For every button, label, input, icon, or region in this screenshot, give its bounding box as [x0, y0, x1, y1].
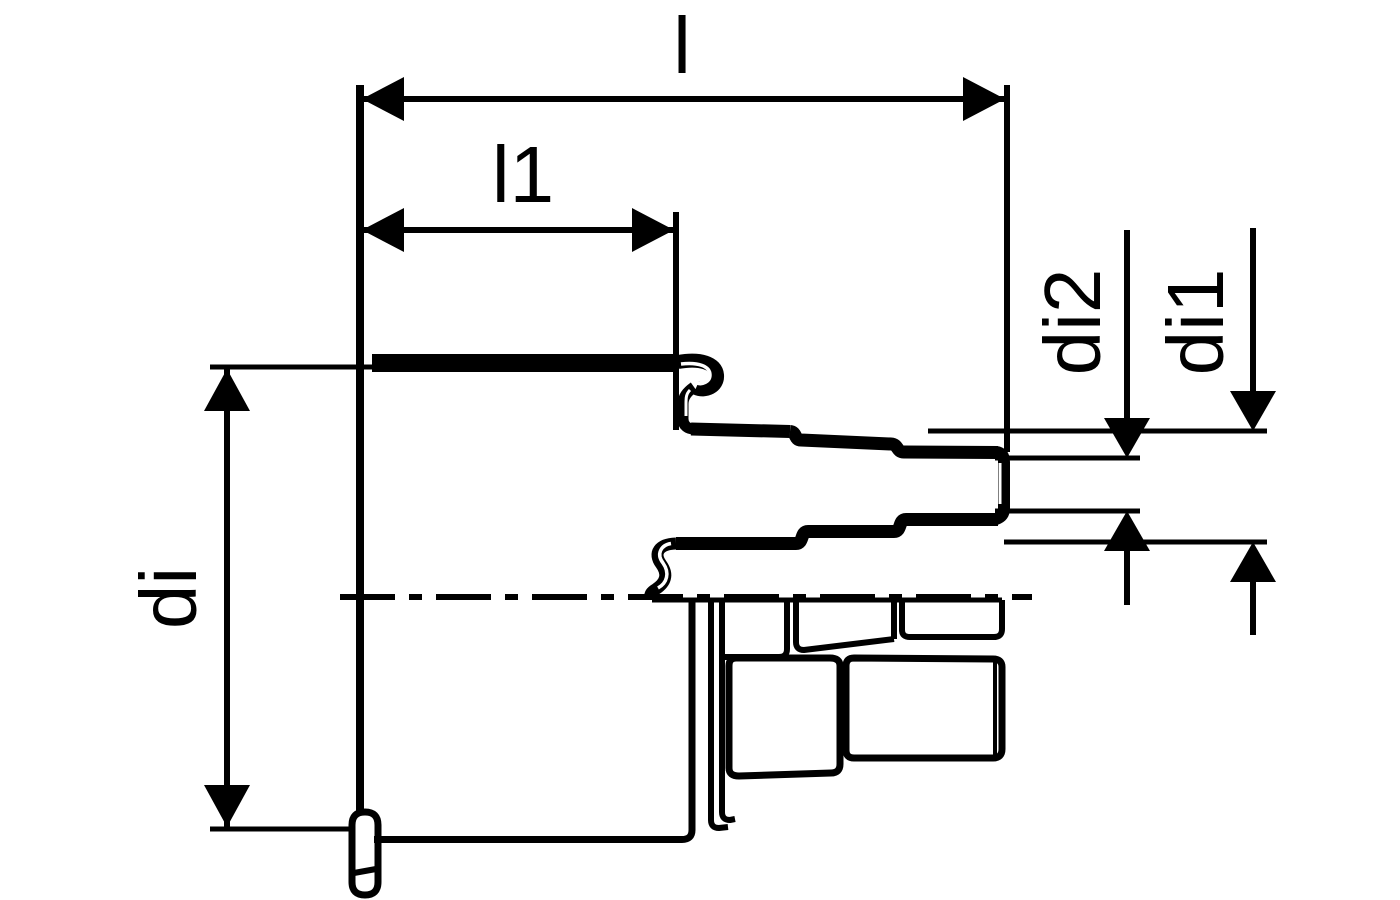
dimension-di1-label: di1 — [1151, 269, 1240, 376]
dimension-di-label: di — [124, 567, 213, 629]
socket-lip-end-mark — [354, 869, 376, 873]
dimension-l1-label: l1 — [492, 130, 554, 219]
dimension-l-label: l — [673, 1, 691, 90]
dimension-di2-label: di2 — [1028, 269, 1117, 376]
technical-drawing: l l1 di di2 di1 — [0, 0, 1400, 900]
background — [0, 0, 1400, 900]
upper-wall-seg-a — [691, 429, 790, 432]
drawing-canvas: l l1 di di2 di1 — [0, 0, 1400, 900]
